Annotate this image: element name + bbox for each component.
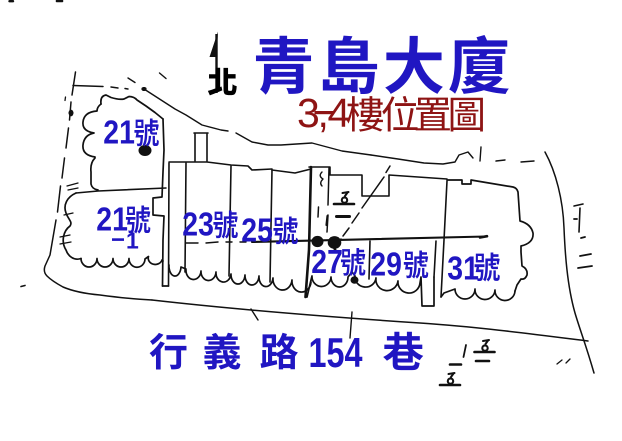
svg-text:25: 25 — [241, 211, 273, 249]
svg-text:31: 31 — [447, 249, 479, 287]
svg-text:1: 1 — [126, 228, 139, 254]
svg-text:23: 23 — [182, 205, 214, 243]
svg-text:21: 21 — [96, 200, 128, 238]
svg-text:27: 27 — [311, 243, 343, 281]
svg-text:29: 29 — [370, 245, 402, 283]
svg-text:4: 4 — [328, 90, 351, 136]
svg-text:154: 154 — [309, 329, 363, 376]
svg-text:21: 21 — [103, 113, 135, 151]
